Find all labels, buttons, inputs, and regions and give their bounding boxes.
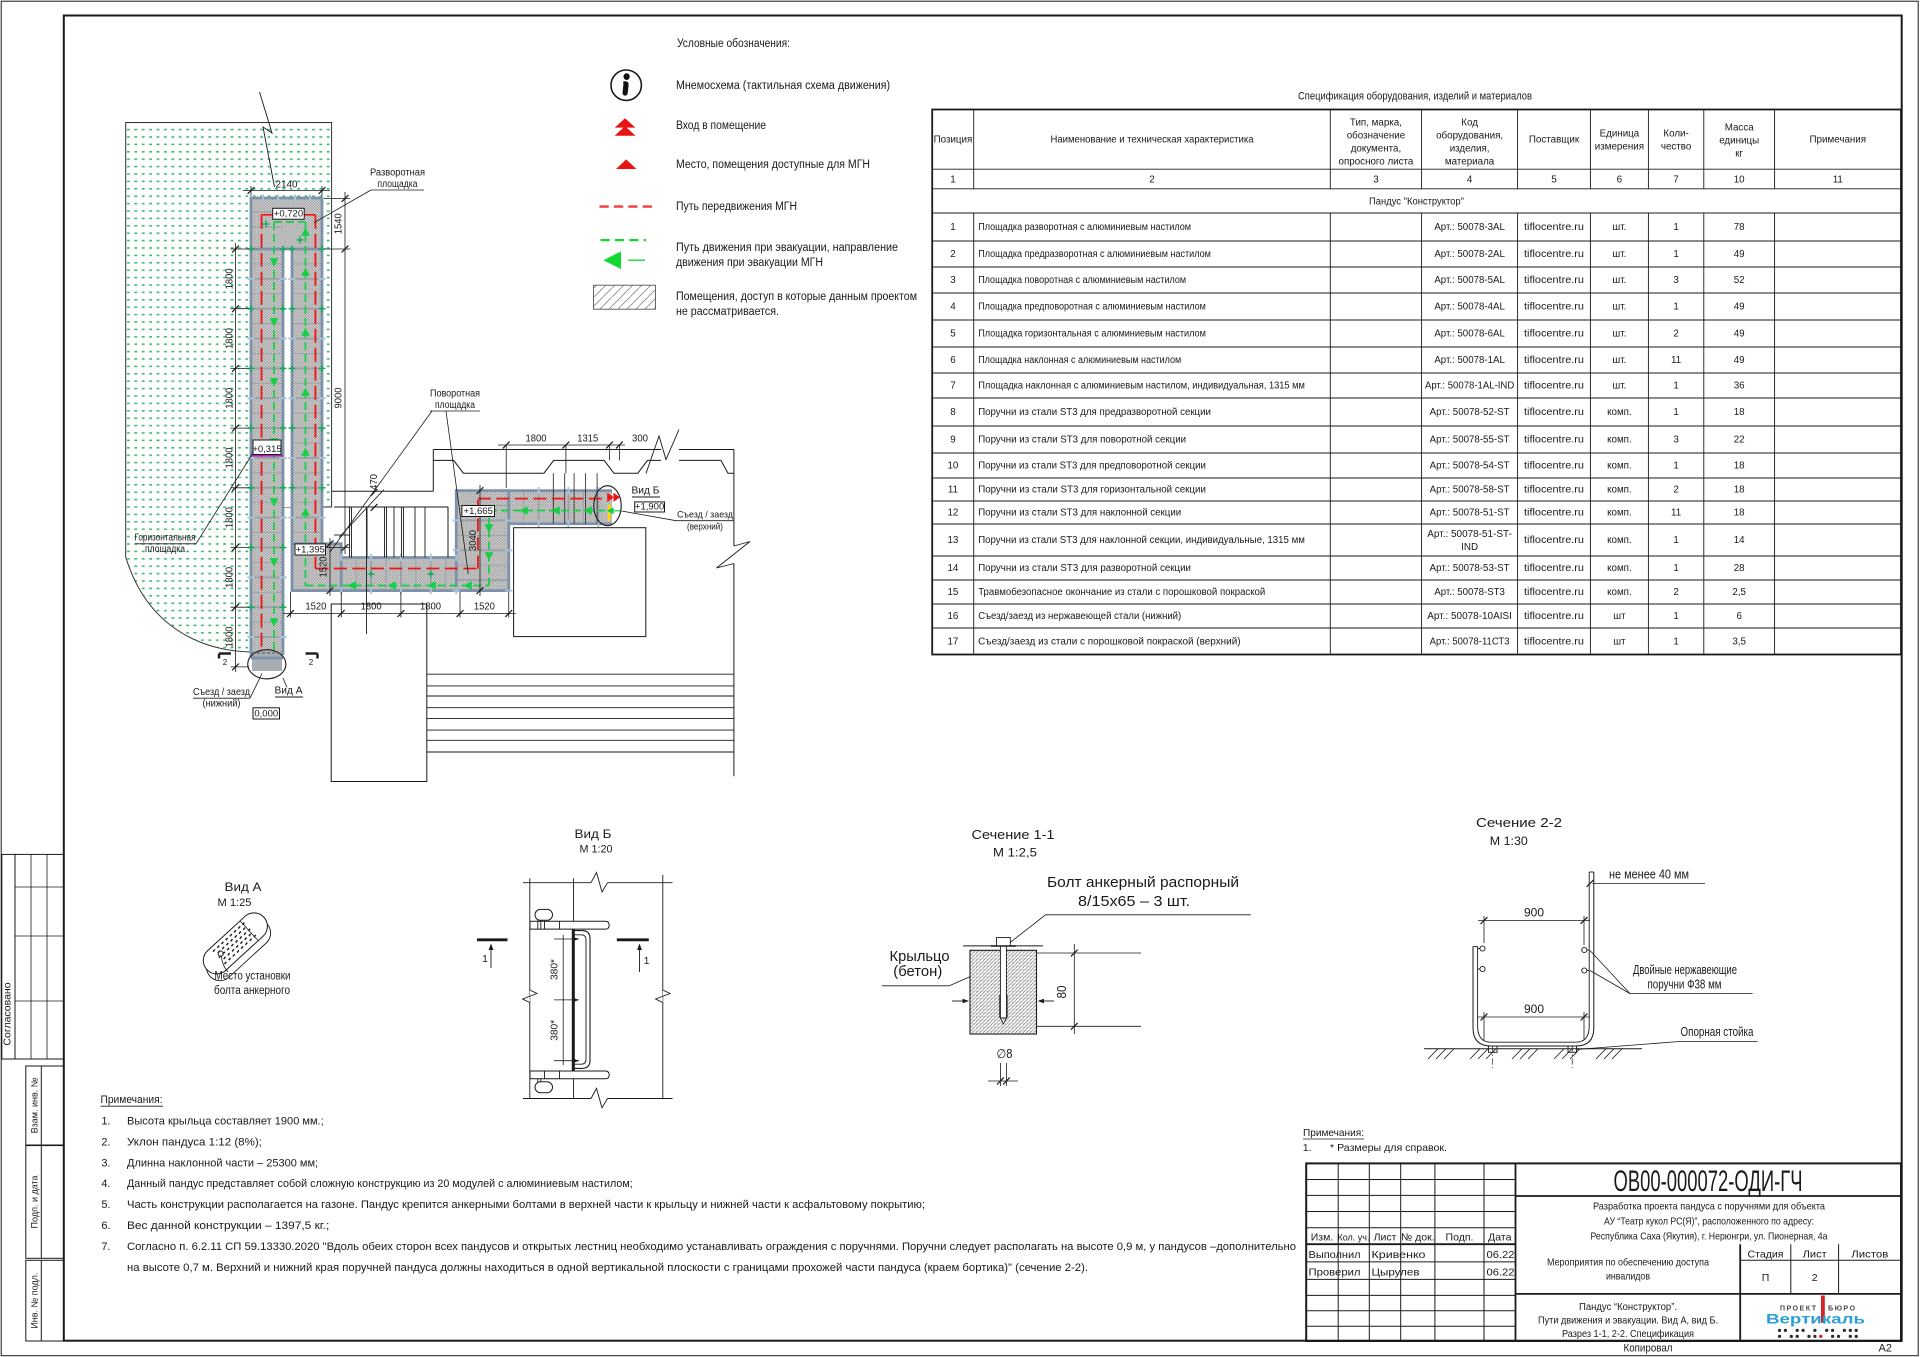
svg-text:0,000: 0,000 — [254, 708, 278, 719]
svg-text:3: 3 — [1373, 175, 1379, 186]
svg-text:9000: 9000 — [333, 387, 345, 408]
svg-text:Арт.: 50078-2AL: Арт.: 50078-2AL — [1434, 249, 1505, 260]
svg-text:комп.: комп. — [1607, 535, 1632, 546]
svg-text:22: 22 — [1734, 435, 1745, 446]
svg-text:12: 12 — [947, 508, 958, 519]
svg-text:52: 52 — [1734, 275, 1745, 286]
svg-text:Поручни из стали ST3 для предп: Поручни из стали ST3 для предповоротной … — [978, 461, 1206, 472]
svg-text:tiflocentre.ru: tiflocentre.ru — [1524, 508, 1584, 519]
svg-text:(нижний): (нижний) — [203, 699, 241, 710]
svg-text:(верхний): (верхний) — [687, 522, 723, 533]
svg-text:1: 1 — [1673, 461, 1678, 472]
svg-text:* Размеры для справок.: * Размеры для справок. — [1330, 1142, 1447, 1154]
svg-text:Кол. уч.: Кол. уч. — [1338, 1232, 1370, 1242]
svg-text:поручни Ф38 мм: поручни Ф38 мм — [1648, 977, 1722, 992]
svg-text:tiflocentre.ru: tiflocentre.ru — [1524, 249, 1584, 260]
svg-text:Арт.: 50078-10AISI: Арт.: 50078-10AISI — [1427, 611, 1512, 622]
svg-text:инвалидов: инвалидов — [1606, 1271, 1650, 1283]
svg-text:Поставщик: Поставщик — [1529, 134, 1580, 145]
svg-text:Площадка разворотная с алюмини: Площадка разворотная с алюминиевым насти… — [978, 222, 1191, 233]
svg-text:tiflocentre.ru: tiflocentre.ru — [1524, 222, 1584, 233]
svg-text:tiflocentre.ru: tiflocentre.ru — [1524, 407, 1584, 418]
svg-text:Путь передвижения МГН: Путь передвижения МГН — [676, 201, 797, 213]
svg-text:Часть конструкции располагаетс: Часть конструкции располагается на газон… — [127, 1199, 925, 1211]
svg-text:380*: 380* — [549, 959, 561, 980]
svg-text:Сечение 2-2: Сечение 2-2 — [1476, 815, 1562, 830]
svg-text:Арт.: 50078-52-ST: Арт.: 50078-52-ST — [1430, 407, 1510, 418]
svg-text:5: 5 — [1551, 175, 1557, 186]
svg-text:Поручни из стали ST3 для предр: Поручни из стали ST3 для предразворотной… — [978, 407, 1211, 418]
svg-text:2: 2 — [1149, 175, 1154, 186]
svg-text:шт: шт — [1613, 636, 1626, 647]
svg-text:Место, помещения доступные для: Место, помещения доступные для МГН — [676, 159, 870, 171]
svg-text:11: 11 — [1671, 508, 1681, 519]
svg-text:Разворотная: Разворотная — [370, 168, 425, 179]
svg-text:tiflocentre.ru: tiflocentre.ru — [1524, 611, 1584, 622]
svg-text:(бетон): (бетон) — [893, 964, 942, 980]
svg-text:не менее 40 мм: не менее 40 мм — [1609, 867, 1689, 882]
svg-text:78: 78 — [1734, 222, 1745, 233]
svg-text:tiflocentre.ru: tiflocentre.ru — [1524, 275, 1584, 286]
svg-text:Поручни из стали ST3 для повор: Поручни из стали ST3 для поворотной секц… — [978, 435, 1186, 446]
svg-text:7: 7 — [950, 381, 955, 392]
svg-text:изделия,: изделия, — [1450, 144, 1490, 155]
svg-text:tiflocentre.ru: tiflocentre.ru — [1524, 381, 1584, 392]
svg-text:06.22: 06.22 — [1487, 1266, 1515, 1278]
svg-text:8/15х65 – 3 шт.: 8/15х65 – 3 шт. — [1078, 894, 1190, 910]
svg-text:Дата: Дата — [1488, 1231, 1511, 1243]
svg-text:470: 470 — [368, 474, 380, 490]
svg-text:1.: 1. — [1303, 1142, 1312, 1154]
svg-text:Спецификация оборудования, изд: Спецификация оборудования, изделий и мат… — [1298, 91, 1532, 103]
svg-text:1800: 1800 — [224, 626, 236, 647]
svg-text:Вид Б: Вид Б — [575, 829, 612, 841]
svg-text:+1,665: +1,665 — [464, 506, 493, 517]
svg-text:Площадка наклонная с алюминиев: Площадка наклонная с алюминиевым настило… — [978, 381, 1305, 392]
svg-text:Съезд/заезд из стали с порошко: Съезд/заезд из стали с порошковой покрас… — [978, 636, 1240, 647]
svg-text:36: 36 — [1734, 381, 1745, 392]
svg-text:Место установки: Место установки — [215, 971, 291, 983]
svg-text:1: 1 — [1673, 636, 1678, 647]
svg-text:15: 15 — [947, 587, 958, 598]
svg-text:площадка: площадка — [145, 544, 185, 555]
svg-text:АУ “Театр кукол РС(Я)”, распол: АУ “Театр кукол РС(Я)”, расположенного п… — [1604, 1216, 1814, 1228]
svg-text:1800: 1800 — [224, 567, 236, 588]
svg-text:tiflocentre.ru: tiflocentre.ru — [1524, 535, 1584, 546]
svg-text:06.22: 06.22 — [1487, 1249, 1515, 1261]
svg-text:болта анкерного: болта анкерного — [214, 985, 290, 997]
svg-text:площадка: площадка — [378, 179, 418, 190]
svg-text:Выполнил: Выполнил — [1309, 1249, 1361, 1261]
svg-text:18: 18 — [1734, 508, 1745, 519]
svg-text:шт.: шт. — [1612, 381, 1626, 392]
svg-text:1800: 1800 — [420, 601, 441, 613]
svg-text:Данный пандус представляет соб: Данный пандус представляет собой сложную… — [127, 1178, 633, 1190]
svg-text:49: 49 — [1734, 355, 1745, 366]
svg-text:Высота крыльца составляет 1900: Высота крыльца составляет 1900 мм.; — [127, 1116, 324, 1128]
svg-text:28: 28 — [1734, 563, 1745, 574]
svg-text:№ док.: № док. — [1401, 1231, 1435, 1243]
svg-text:1: 1 — [1673, 535, 1678, 546]
svg-text:Условные обозначения:: Условные обозначения: — [677, 38, 790, 50]
svg-text:tiflocentre.ru: tiflocentre.ru — [1524, 329, 1584, 340]
svg-text:Согласно п. 6.2.11 СП 59.13330: Согласно п. 6.2.11 СП 59.13330.2020 "Вдо… — [127, 1241, 1296, 1253]
svg-text:300: 300 — [632, 433, 648, 445]
svg-text:Двойные нержавеющие: Двойные нержавеющие — [1633, 962, 1737, 977]
svg-text:Вид А: Вид А — [275, 685, 303, 697]
svg-text:шт.: шт. — [1612, 302, 1626, 313]
svg-text:единицы: единицы — [1719, 135, 1759, 146]
svg-text:Уклон пандуса 1:12 (8%);: Уклон пандуса 1:12 (8%); — [127, 1136, 262, 1148]
svg-text:Арт.: 50078-55-ST: Арт.: 50078-55-ST — [1430, 435, 1510, 446]
svg-text:1800: 1800 — [526, 433, 547, 445]
svg-text:обозначение: обозначение — [1347, 131, 1406, 142]
svg-text:Травмобезопасное окончание из: Травмобезопасное окончание из стали с по… — [978, 587, 1265, 598]
svg-text:Арт.: 50078-51-ST-: Арт.: 50078-51-ST- — [1427, 529, 1512, 540]
svg-text:5: 5 — [950, 329, 956, 340]
svg-text:tiflocentre.ru: tiflocentre.ru — [1524, 587, 1584, 598]
svg-text:1520: 1520 — [305, 601, 326, 613]
svg-text:Подп.: Подп. — [1446, 1231, 1474, 1243]
svg-text:М 1:20: М 1:20 — [580, 844, 613, 856]
svg-text:1520: 1520 — [318, 556, 330, 577]
svg-text:Наименование и техническая хар: Наименование и техническая характеристик… — [1051, 134, 1255, 145]
svg-text:Съезд / заезд: Съезд / заезд — [193, 687, 250, 698]
svg-text:шт.: шт. — [1612, 275, 1626, 286]
svg-text:Кривенко: Кривенко — [1372, 1249, 1426, 1261]
svg-text:3040: 3040 — [467, 530, 479, 551]
svg-text:Позиция: Позиция — [934, 134, 973, 145]
svg-text:Арт.: 50078-58-ST: Арт.: 50078-58-ST — [1430, 485, 1510, 496]
svg-text:Горизонтальная: Горизонтальная — [135, 533, 196, 544]
svg-text:Съезд / заезд: Съезд / заезд — [677, 510, 733, 521]
svg-text:7: 7 — [1673, 175, 1678, 186]
svg-text:Республика Саха (Якутия), г. Н: Республика Саха (Якутия), г. Нерюнгри, у… — [1591, 1231, 1828, 1243]
svg-text:Примечания: Примечания — [1810, 134, 1867, 145]
svg-text:380*: 380* — [549, 1020, 561, 1041]
svg-text:комп.: комп. — [1607, 461, 1632, 472]
svg-text:6.: 6. — [101, 1220, 110, 1232]
svg-text:Взам. инв. №: Взам. инв. № — [30, 1077, 40, 1133]
svg-text:18: 18 — [1734, 461, 1745, 472]
svg-text:комп.: комп. — [1607, 485, 1632, 496]
svg-text:1: 1 — [1673, 381, 1678, 392]
svg-text:Арт.: 50078-51-ST: Арт.: 50078-51-ST — [1430, 508, 1510, 519]
svg-text:на высоте 0,7 м. Верхний и ниж: на высоте 0,7 м. Верхний и нижний края п… — [127, 1262, 1088, 1274]
svg-text:2: 2 — [1673, 329, 1678, 340]
svg-text:Площадка предповоротная с алюм: Площадка предповоротная с алюминиевым на… — [978, 302, 1206, 313]
svg-text:Площадка поворотная с алюминие: Площадка поворотная с алюминиевым настил… — [978, 275, 1186, 286]
svg-text:Вход в помещение: Вход в помещение — [676, 120, 766, 132]
svg-text:кг: кг — [1735, 148, 1743, 159]
svg-text:9: 9 — [950, 435, 955, 446]
svg-text:Поручни из стали ST3 для гориз: Поручни из стали ST3 для горизонтальной … — [978, 485, 1206, 496]
svg-text:Площадка предразворотная с алю: Площадка предразворотная с алюминиевым н… — [978, 249, 1211, 260]
svg-text:tiflocentre.ru: tiflocentre.ru — [1524, 485, 1584, 496]
svg-text:IND: IND — [1461, 542, 1478, 553]
svg-text:комп.: комп. — [1607, 508, 1632, 519]
svg-text:Вид А: Вид А — [225, 882, 262, 894]
svg-text:Поручни из стали ST3 для накло: Поручни из стали ST3 для наклонной секци… — [978, 535, 1305, 546]
svg-text:2: 2 — [1673, 485, 1678, 496]
svg-text:движения при эвакуации МГН: движения при эвакуации МГН — [676, 257, 823, 269]
svg-text:Вертикаль: Вертикаль — [1766, 1312, 1865, 1327]
svg-text:1: 1 — [950, 222, 955, 233]
svg-text:П: П — [1762, 1272, 1770, 1284]
svg-text:1: 1 — [644, 955, 650, 967]
svg-text:шт.: шт. — [1612, 222, 1626, 233]
svg-text:10: 10 — [947, 461, 958, 472]
svg-text:Сечение 1-1: Сечение 1-1 — [972, 827, 1055, 842]
svg-text:Согласовано: Согласовано — [2, 982, 14, 1045]
svg-text:3.: 3. — [101, 1157, 110, 1169]
svg-text:Пути движения и эвакуации. Вид: Пути движения и эвакуации. Вид А, вид Б. — [1538, 1315, 1718, 1327]
svg-text:4.: 4. — [101, 1178, 110, 1190]
svg-text:материала: материала — [1445, 157, 1495, 168]
svg-text:шт: шт — [1613, 611, 1626, 622]
svg-text:Опорная стойка: Опорная стойка — [1681, 1024, 1755, 1039]
svg-text:1: 1 — [1673, 407, 1678, 418]
svg-text:Арт.: 50078-54-ST: Арт.: 50078-54-ST — [1430, 461, 1510, 472]
svg-text:13: 13 — [947, 535, 958, 546]
svg-text:10: 10 — [1734, 175, 1745, 186]
svg-text:М 1:25: М 1:25 — [218, 897, 252, 909]
svg-text:измерения: измерения — [1595, 141, 1644, 152]
svg-text:5.: 5. — [101, 1199, 110, 1211]
svg-text:2,5: 2,5 — [1732, 587, 1746, 598]
svg-text:16: 16 — [947, 611, 958, 622]
svg-text:Площадка наклонная с алюминиев: Площадка наклонная с алюминиевым настило… — [978, 355, 1181, 366]
svg-text:Подп. и дата: Подп. и дата — [30, 1175, 40, 1228]
svg-text:6: 6 — [1736, 611, 1742, 622]
svg-text:Поворотная: Поворотная — [430, 389, 480, 400]
svg-text:Изм.: Изм. — [1311, 1231, 1334, 1243]
svg-text:18: 18 — [1734, 407, 1745, 418]
svg-text:tiflocentre.ru: tiflocentre.ru — [1524, 563, 1584, 574]
svg-text:Примечания:: Примечания: — [1303, 1127, 1364, 1139]
svg-text:1800: 1800 — [224, 268, 236, 289]
svg-text:А2: А2 — [1879, 1343, 1892, 1355]
svg-text:Арт.: 50078-5AL: Арт.: 50078-5AL — [1434, 275, 1505, 286]
svg-text:Код: Код — [1461, 118, 1478, 129]
svg-text:∅8: ∅8 — [997, 1047, 1013, 1061]
svg-text:комп.: комп. — [1607, 587, 1632, 598]
svg-text:1800: 1800 — [224, 507, 236, 528]
svg-text:комп.: комп. — [1607, 407, 1632, 418]
svg-text:2: 2 — [223, 658, 228, 667]
svg-text:Листов: Листов — [1851, 1248, 1888, 1260]
svg-text:900: 900 — [1524, 1002, 1544, 1016]
svg-text:М 1:30: М 1:30 — [1490, 834, 1528, 848]
svg-text:2.: 2. — [101, 1136, 110, 1148]
svg-text:Примечания:: Примечания: — [101, 1094, 163, 1106]
svg-text:комп.: комп. — [1607, 563, 1632, 574]
svg-text:900: 900 — [1524, 906, 1544, 920]
svg-text:80: 80 — [1055, 985, 1069, 998]
svg-text:опросного листа: опросного листа — [1339, 157, 1414, 168]
svg-text:4: 4 — [1467, 175, 1473, 186]
svg-text:Масса: Масса — [1725, 122, 1755, 133]
svg-text:8: 8 — [950, 407, 956, 418]
svg-text:2: 2 — [1812, 1272, 1818, 1284]
svg-text:не рассматривается.: не рассматривается. — [676, 306, 779, 318]
svg-text:шт.: шт. — [1612, 329, 1626, 340]
svg-text:3: 3 — [1673, 275, 1679, 286]
svg-text:1: 1 — [1673, 563, 1678, 574]
svg-text:49: 49 — [1734, 302, 1745, 313]
svg-text:11: 11 — [948, 485, 958, 496]
svg-text:Разработка проекта пандуса с п: Разработка проекта пандуса с поручнями д… — [1593, 1201, 1825, 1213]
svg-text:Арт.: 50078-53-ST: Арт.: 50078-53-ST — [1430, 563, 1510, 574]
svg-text:Поручни из стали ST3 для накло: Поручни из стали ST3 для наклонной секци… — [978, 508, 1181, 519]
svg-text:Крыльцо: Крыльцо — [890, 949, 950, 965]
svg-text:1: 1 — [950, 175, 955, 186]
svg-text:площадка: площадка — [435, 400, 475, 411]
svg-text:1800: 1800 — [361, 601, 382, 613]
svg-text:оборудования,: оборудования, — [1436, 131, 1503, 142]
svg-text:Лист: Лист — [1374, 1231, 1397, 1243]
svg-text:Цырулев: Цырулев — [1372, 1266, 1420, 1278]
svg-text:Коли-: Коли- — [1663, 128, 1688, 139]
svg-text:1: 1 — [1673, 249, 1678, 260]
svg-text:tiflocentre.ru: tiflocentre.ru — [1524, 355, 1584, 366]
svg-text:Площадка горизонтальная с алюм: Площадка горизонтальная с алюминиевым на… — [978, 329, 1206, 340]
svg-text:1520: 1520 — [474, 601, 495, 613]
svg-text:Путь движения при эвакуации, н: Путь движения при эвакуации, направление — [676, 242, 898, 254]
svg-text:Арт.: 50078-3AL: Арт.: 50078-3AL — [1434, 222, 1505, 233]
svg-text:tiflocentre.ru: tiflocentre.ru — [1524, 435, 1584, 446]
svg-text:49: 49 — [1734, 249, 1745, 260]
svg-text:14: 14 — [947, 563, 958, 574]
svg-text:+1,900: +1,900 — [635, 501, 664, 512]
svg-text:Копировал: Копировал — [1624, 1343, 1673, 1355]
svg-text:+0,720: +0,720 — [274, 209, 303, 220]
svg-text:Пандус "Конструктор": Пандус "Конструктор" — [1369, 197, 1464, 208]
svg-text:Съезд/заезд из нержавеющей ста: Съезд/заезд из нержавеющей стали (нижний… — [978, 611, 1181, 622]
svg-text:Арт.: 50078-1AL: Арт.: 50078-1AL — [1434, 355, 1505, 366]
svg-text:шт.: шт. — [1612, 249, 1626, 260]
svg-text:М 1:2,5: М 1:2,5 — [993, 846, 1037, 860]
svg-text:6: 6 — [1617, 175, 1623, 186]
svg-text:1: 1 — [1673, 611, 1678, 622]
svg-text:Мнемосхема (тактильная схема д: Мнемосхема (тактильная схема движения) — [676, 80, 890, 92]
svg-text:Арт.: 50078-6AL: Арт.: 50078-6AL — [1434, 329, 1505, 340]
svg-text:1: 1 — [1673, 302, 1678, 313]
svg-text:18: 18 — [1734, 485, 1745, 496]
svg-text:Длинна наклонной части – 25300: Длинна наклонной части – 25300 мм; — [127, 1157, 318, 1169]
svg-text:1800: 1800 — [224, 447, 236, 468]
svg-text:Арт.: 50078-ST3: Арт.: 50078-ST3 — [1434, 587, 1505, 598]
svg-text:17: 17 — [947, 636, 958, 647]
svg-text:1: 1 — [482, 953, 488, 965]
svg-text:6: 6 — [950, 355, 956, 366]
svg-text:1.: 1. — [101, 1116, 110, 1128]
svg-text:Лист: Лист — [1803, 1248, 1827, 1260]
svg-text:tiflocentre.ru: tiflocentre.ru — [1524, 302, 1584, 313]
svg-text:Вид Б: Вид Б — [632, 485, 660, 497]
svg-text:tiflocentre.ru: tiflocentre.ru — [1524, 636, 1584, 647]
svg-text:1800: 1800 — [224, 388, 236, 409]
svg-text:7.: 7. — [101, 1241, 110, 1253]
svg-text:Арт.: 50078-11СТ3: Арт.: 50078-11СТ3 — [1430, 636, 1510, 647]
svg-text:ОВ00-000072-ОДИ-ГЧ: ОВ00-000072-ОДИ-ГЧ — [1614, 1165, 1803, 1198]
svg-text:документа,: документа, — [1351, 144, 1402, 155]
svg-text:чество: чество — [1661, 141, 1692, 152]
svg-text:Разрез 1-1, 2-2. Спецификация: Разрез 1-1, 2-2. Спецификация — [1562, 1328, 1694, 1340]
svg-text:tiflocentre.ru: tiflocentre.ru — [1524, 461, 1584, 472]
svg-text:3: 3 — [950, 275, 956, 286]
svg-text:Мероприятия по обеспечению дос: Мероприятия по обеспечению доступа — [1547, 1257, 1709, 1269]
svg-text:1: 1 — [1673, 222, 1678, 233]
svg-text:1540: 1540 — [333, 213, 345, 234]
svg-text:2: 2 — [950, 249, 955, 260]
svg-text:11: 11 — [1833, 175, 1843, 186]
svg-text:11: 11 — [1671, 355, 1681, 366]
svg-text:1315: 1315 — [577, 433, 598, 445]
svg-text:4: 4 — [950, 302, 956, 313]
svg-text:Инв. № подл.: Инв. № подл. — [30, 1273, 40, 1329]
svg-text:Пандус “Конструктор”.: Пандус “Конструктор”. — [1579, 1301, 1677, 1313]
svg-text:2: 2 — [309, 658, 314, 667]
svg-text:2: 2 — [1673, 587, 1678, 598]
svg-text:Проверил: Проверил — [1309, 1266, 1361, 1278]
svg-text:+0,315: +0,315 — [252, 444, 281, 455]
svg-text:49: 49 — [1734, 329, 1745, 340]
svg-text:2140: 2140 — [276, 179, 298, 191]
svg-text:Помещения, доступ в которые да: Помещения, доступ в которые данным проек… — [676, 291, 917, 303]
svg-text:шт.: шт. — [1612, 355, 1626, 366]
svg-text:Стадия: Стадия — [1748, 1248, 1784, 1260]
svg-text:14: 14 — [1734, 535, 1745, 546]
svg-text:1800: 1800 — [224, 328, 236, 349]
svg-text:+1,395: +1,395 — [296, 544, 325, 555]
svg-text:комп.: комп. — [1607, 435, 1632, 446]
svg-text:Тип, марка,: Тип, марка, — [1350, 118, 1402, 129]
svg-text:Арт.: 50078-1AL-IND: Арт.: 50078-1AL-IND — [1425, 381, 1514, 392]
svg-text:Арт.: 50078-4AL: Арт.: 50078-4AL — [1434, 302, 1505, 313]
svg-text:Поручни из стали ST3 для разво: Поручни из стали ST3 для разворотной сек… — [978, 563, 1191, 574]
svg-text:3: 3 — [1673, 435, 1679, 446]
svg-text:3,5: 3,5 — [1732, 636, 1746, 647]
svg-text:Болт анкерный распорный: Болт анкерный распорный — [1047, 875, 1239, 891]
svg-text:Единица: Единица — [1600, 128, 1640, 139]
svg-text:Вес данной конструкции – 1397,: Вес данной конструкции – 1397,5 кг.; — [127, 1220, 329, 1232]
